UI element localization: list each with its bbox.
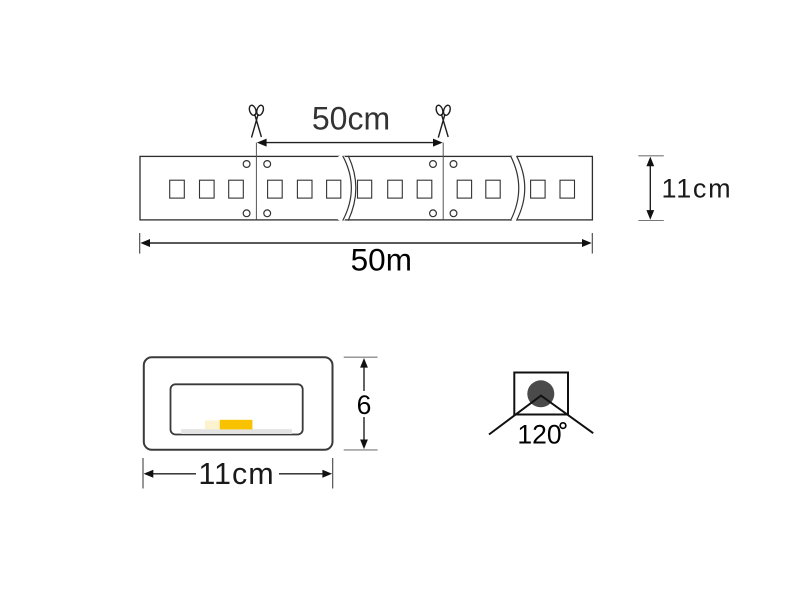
svg-text:6: 6 [357,390,372,420]
svg-text:11cm: 11cm [198,457,274,491]
svg-text:11cm: 11cm [662,174,733,204]
svg-text:120: 120 [517,419,561,449]
svg-text:50m: 50m [351,242,412,278]
svg-text:50cm: 50cm [312,100,390,136]
